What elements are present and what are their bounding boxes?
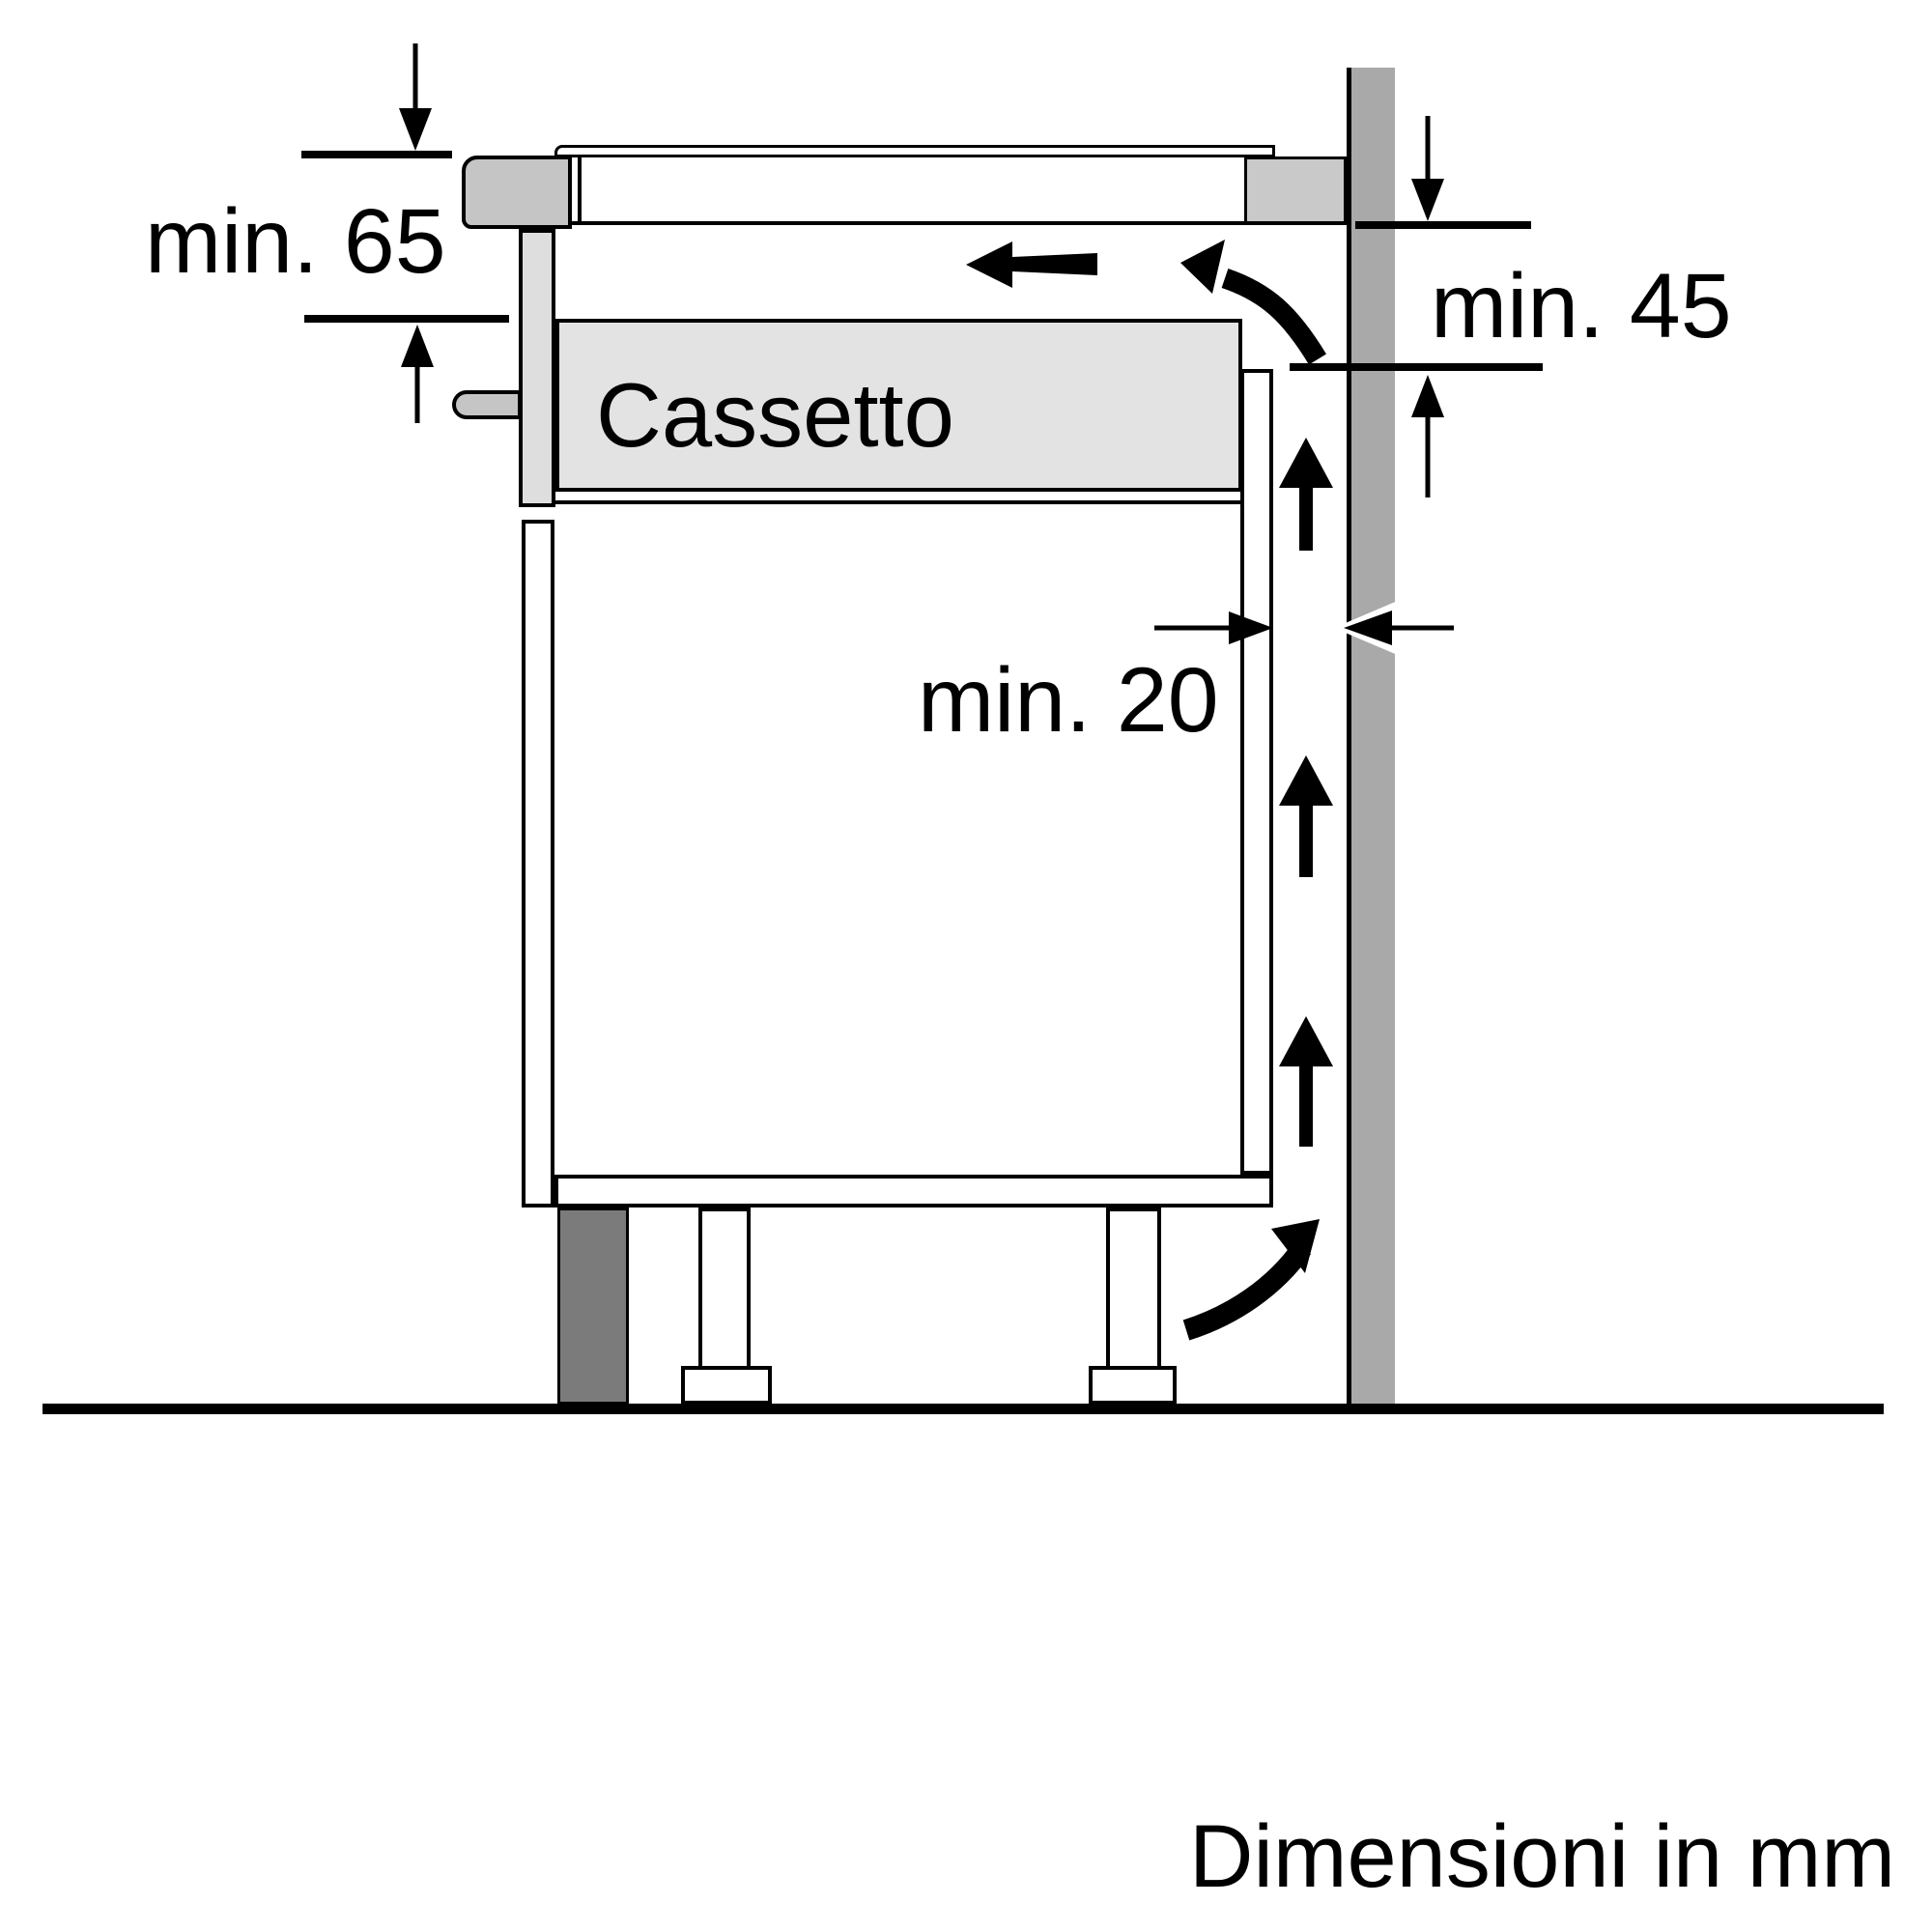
up-arrow-icon bbox=[1279, 755, 1333, 806]
installation-clearance-diagram: Cassetto bbox=[0, 0, 1932, 1932]
arrowhead-icon bbox=[1271, 1219, 1320, 1273]
down-arrow-icon bbox=[1411, 179, 1444, 221]
up-arrow-icon bbox=[1279, 1016, 1333, 1066]
wall-section bbox=[1347, 68, 1395, 1405]
worktop-bottom-line bbox=[572, 221, 1347, 225]
worktop-front-edge-line bbox=[578, 157, 582, 225]
under-drawer-rail-line bbox=[555, 500, 1242, 504]
airflow-curved-arrow-bottom bbox=[1186, 1219, 1320, 1330]
up-arrow-icon bbox=[1411, 375, 1444, 417]
cabinet-plinth bbox=[557, 1207, 629, 1405]
cabinet-leg-foot-right bbox=[1089, 1366, 1177, 1405]
cabinet-bottom-panel bbox=[554, 1175, 1273, 1207]
cabinet-back-panel bbox=[1240, 369, 1273, 1175]
units-caption: Dimensioni in mm bbox=[1189, 1812, 1895, 1901]
airflow-up-arrows bbox=[1279, 438, 1333, 1147]
dimension-label-min65: min. 65 bbox=[145, 196, 446, 288]
hob-front-rail bbox=[519, 229, 555, 507]
drawer-box: Cassetto bbox=[555, 319, 1242, 492]
floor-line bbox=[43, 1404, 1884, 1414]
down-arrow-icon bbox=[399, 108, 432, 151]
cabinet-leg-foot-left bbox=[681, 1366, 772, 1405]
drawer-label: Cassetto bbox=[596, 370, 954, 461]
worktop-batten bbox=[1244, 156, 1347, 225]
dimension-label-min45: min. 45 bbox=[1431, 261, 1732, 353]
cabinet-leg-stem-left bbox=[698, 1207, 751, 1370]
airflow-left-arrow-icon bbox=[966, 241, 1097, 288]
arrowhead-icon bbox=[1180, 240, 1225, 294]
dimension-label-min20: min. 20 bbox=[918, 655, 1219, 747]
cabinet-front-panel bbox=[522, 520, 554, 1207]
hob-front-trim bbox=[462, 156, 572, 229]
up-arrow-icon bbox=[1279, 438, 1333, 488]
up-arrow-icon bbox=[401, 325, 434, 367]
cabinet-leg-stem-right bbox=[1106, 1207, 1161, 1370]
hob-mounting-knob bbox=[452, 390, 522, 419]
hob-glass-top bbox=[554, 145, 1275, 157]
dimension-min20-arrows bbox=[1154, 600, 1454, 656]
